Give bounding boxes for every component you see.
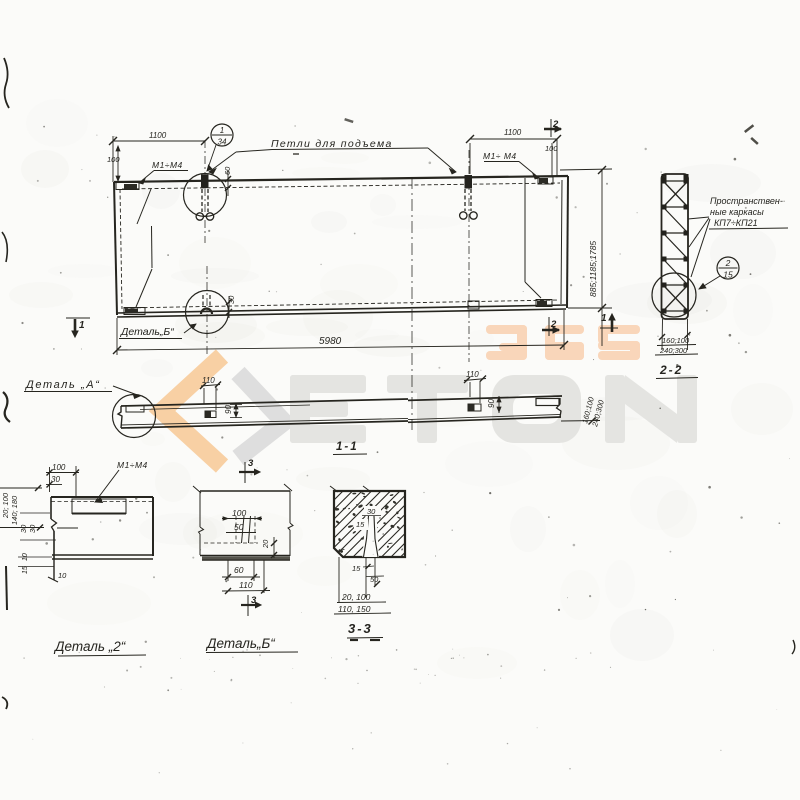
- svg-text:100: 100: [107, 155, 120, 164]
- svg-text:30: 30: [51, 475, 60, 484]
- svg-text:2-2: 2-2: [659, 363, 683, 377]
- svg-text:1100: 1100: [504, 128, 522, 137]
- svg-text:50: 50: [234, 522, 244, 532]
- svg-text:20, 100: 20, 100: [341, 592, 371, 602]
- svg-text:140; 180: 140; 180: [10, 495, 19, 525]
- svg-text:20: 20: [261, 539, 270, 549]
- svg-text:30: 30: [227, 295, 236, 304]
- svg-text:90: 90: [487, 399, 496, 408]
- svg-text:34: 34: [218, 138, 227, 147]
- svg-text:Деталь„Б“: Деталь„Б“: [120, 326, 174, 338]
- svg-text:10: 10: [58, 571, 67, 580]
- svg-text:15: 15: [22, 566, 29, 574]
- svg-text:ные каркасы: ные каркасы: [710, 207, 764, 217]
- svg-text:15: 15: [352, 564, 361, 573]
- svg-text:1: 1: [79, 320, 85, 331]
- svg-text:Деталь„Б“: Деталь„Б“: [205, 636, 276, 651]
- svg-text:240;300: 240;300: [659, 346, 688, 355]
- svg-text:60: 60: [234, 565, 244, 575]
- svg-text:2: 2: [725, 258, 731, 268]
- svg-text:100: 100: [232, 508, 246, 518]
- svg-text:1-1: 1-1: [336, 441, 359, 453]
- svg-text:М1÷М4: М1÷М4: [117, 460, 148, 470]
- svg-text:Деталь „А“: Деталь „А“: [24, 379, 100, 391]
- svg-text:160;100: 160;100: [662, 336, 690, 345]
- svg-text:2: 2: [550, 319, 557, 330]
- svg-text:3-3: 3-3: [348, 621, 373, 636]
- svg-text:30: 30: [19, 524, 28, 533]
- svg-text:90: 90: [224, 405, 233, 414]
- svg-text:20; 100: 20; 100: [1, 492, 10, 519]
- svg-text:15: 15: [723, 270, 733, 280]
- svg-text:1: 1: [220, 126, 224, 135]
- svg-text:М1÷ М4: М1÷ М4: [483, 151, 517, 161]
- svg-text:3: 3: [248, 458, 254, 469]
- svg-text:2: 2: [552, 119, 559, 130]
- svg-text:30: 30: [367, 507, 376, 516]
- svg-text:110, 150: 110, 150: [338, 604, 371, 614]
- svg-text:М1÷М4: М1÷М4: [152, 160, 183, 170]
- svg-text:КП7÷КП21: КП7÷КП21: [714, 218, 758, 228]
- svg-text:110: 110: [239, 580, 253, 590]
- svg-text:110: 110: [202, 376, 215, 385]
- svg-text:30: 30: [28, 524, 37, 533]
- svg-text:15: 15: [356, 520, 365, 529]
- svg-text:5980: 5980: [319, 336, 342, 347]
- svg-text:1100: 1100: [149, 131, 167, 140]
- svg-text:60: 60: [223, 166, 232, 175]
- svg-text:110: 110: [466, 370, 479, 379]
- svg-text:Деталь „2“: Деталь „2“: [53, 639, 127, 654]
- svg-text:3: 3: [251, 595, 257, 606]
- svg-text:885;1185;1785: 885;1185;1785: [588, 241, 598, 297]
- svg-text:Пространствен-: Пространствен-: [710, 196, 783, 206]
- svg-text:100: 100: [52, 463, 66, 472]
